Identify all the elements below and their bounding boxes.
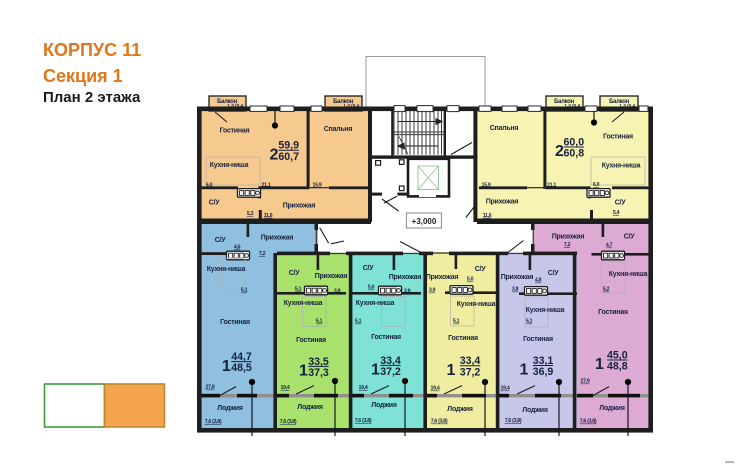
svg-text:21,1: 21,1 [547,183,556,189]
svg-text:3,9: 3,9 [404,289,411,295]
svg-text:19,4: 19,4 [501,386,510,392]
svg-text:27,8: 27,8 [206,385,215,391]
svg-text:С/У: С/У [475,266,487,273]
svg-text:37,2: 37,2 [460,366,481,378]
svg-text:Прихожая: Прихожая [552,234,585,241]
svg-text:Гостиная: Гостиная [220,128,250,135]
svg-text:5,1: 5,1 [526,319,533,325]
svg-text:36,9: 36,9 [533,366,554,378]
svg-text:Гостиная: Гостиная [371,334,401,341]
svg-text:Кухня-ниша: Кухня-ниша [210,162,249,169]
svg-text:7,6 (3,8): 7,6 (3,8) [580,419,597,425]
svg-text:5,2: 5,2 [603,287,610,293]
svg-text:4,8: 4,8 [535,278,542,284]
svg-text:1: 1 [520,362,529,379]
svg-text:48,8: 48,8 [607,361,628,373]
svg-text:С/У: С/У [215,237,227,244]
svg-text:7,6 (3,8): 7,6 (3,8) [431,419,448,425]
svg-text:Спальня: Спальня [324,126,353,133]
svg-text:Прихожая: Прихожая [501,274,534,281]
svg-text:Лоджия: Лоджия [297,404,323,411]
svg-text:Гостиная: Гостиная [598,309,628,316]
svg-text:Секция 1: Секция 1 [43,66,123,86]
svg-text:1: 1 [595,356,604,373]
svg-text:Прихожая: Прихожая [315,273,348,280]
svg-text:6,0: 6,0 [206,183,213,189]
svg-text:С/У: С/У [624,234,636,241]
svg-text:+3,000: +3,000 [412,217,437,226]
svg-text:Кухня-ниша: Кухня-ниша [602,163,641,170]
svg-text:5,1: 5,1 [355,319,362,325]
svg-text:60,7: 60,7 [278,151,299,163]
svg-text:Гостиная: Гостиная [220,319,250,326]
svg-text:19,4: 19,4 [359,385,368,391]
svg-text:5,1: 5,1 [316,319,323,325]
svg-text:С/У: С/У [548,270,560,277]
svg-text:7,2: 7,2 [564,242,571,248]
svg-text:37,2: 37,2 [380,366,401,378]
svg-text:Лоджия: Лоджия [447,406,473,413]
svg-text:Прихожая: Прихожая [426,274,459,281]
svg-text:Кухня-ниша: Кухня-ниша [284,300,323,307]
svg-text:Гостиная: Гостиная [448,335,478,342]
svg-text:37,3: 37,3 [308,367,329,379]
svg-text:5,0: 5,0 [467,277,474,283]
svg-text:Прихожая: Прихожая [283,203,316,210]
svg-text:Прихожая: Прихожая [389,274,422,281]
svg-text:С/У: С/У [209,199,221,206]
svg-text:48,5: 48,5 [231,362,252,374]
svg-text:15,9: 15,9 [313,183,322,189]
svg-text:Кухня-ниша: Кухня-ниша [356,300,395,307]
svg-text:21,1: 21,1 [262,183,271,189]
svg-text:4,7: 4,7 [606,243,613,249]
svg-text:1: 1 [447,362,456,379]
svg-text:Прихожая: Прихожая [486,199,519,206]
svg-text:Кухня-ниша: Кухня-ниша [457,301,496,308]
svg-text:5,4: 5,4 [613,210,620,216]
svg-text:5,1: 5,1 [241,288,248,294]
svg-text:6,0: 6,0 [593,182,600,188]
svg-text:Кухня-ниша: Кухня-ниша [609,271,648,278]
svg-text:15,9: 15,9 [482,183,491,189]
svg-text:Кухня-ниша: Кухня-ниша [207,266,246,273]
svg-text:19,4: 19,4 [281,385,290,391]
svg-text:7,6 (3,8): 7,6 (3,8) [355,418,372,424]
svg-text:5,1: 5,1 [453,319,460,325]
svg-text:Лоджия: Лоджия [371,402,397,409]
svg-text:Спальня: Спальня [490,125,519,132]
svg-text:С/У: С/У [615,200,627,207]
svg-text:7,6 (3,8): 7,6 (3,8) [205,419,222,425]
svg-text:1: 1 [299,363,308,380]
svg-text:5,3: 5,3 [247,211,254,217]
svg-text:План 2 этажа: План 2 этажа [43,89,141,106]
svg-text:С/У: С/У [363,265,375,272]
svg-text:5,1: 5,1 [295,287,302,293]
svg-text:4,6: 4,6 [234,245,241,251]
svg-text:11,6: 11,6 [483,213,492,219]
svg-text:27,9: 27,9 [581,379,590,385]
svg-text:7,6 (3,8): 7,6 (3,8) [280,419,297,425]
svg-text:3,9: 3,9 [334,289,341,295]
svg-text:Лоджия: Лоджия [522,407,548,414]
svg-text:Гостиная: Гостиная [523,336,553,343]
svg-text:Лоджия: Лоджия [599,405,625,412]
svg-text:5,0: 5,0 [368,285,375,291]
svg-text:Прихожая: Прихожая [261,235,294,242]
svg-text:2: 2 [270,146,279,163]
svg-text:КОРПУС 11: КОРПУС 11 [43,40,141,60]
svg-text:Лоджия: Лоджия [217,405,243,412]
svg-text:3,8: 3,8 [512,287,519,293]
svg-text:Гостиная: Гостиная [603,134,633,141]
svg-text:1: 1 [222,358,231,375]
svg-text:11,6: 11,6 [264,213,273,219]
svg-text:7,2: 7,2 [259,251,266,257]
svg-text:Кухня-ниша: Кухня-ниша [526,307,565,314]
svg-text:Гостиная: Гостиная [296,337,326,344]
svg-text:С/У: С/У [289,270,301,277]
svg-text:7,6 (3,8): 7,6 (3,8) [505,418,522,424]
svg-text:60,8: 60,8 [563,148,584,160]
svg-text:3,9: 3,9 [429,288,436,294]
svg-text:19,4: 19,4 [431,386,440,392]
svg-text:1: 1 [371,362,380,379]
